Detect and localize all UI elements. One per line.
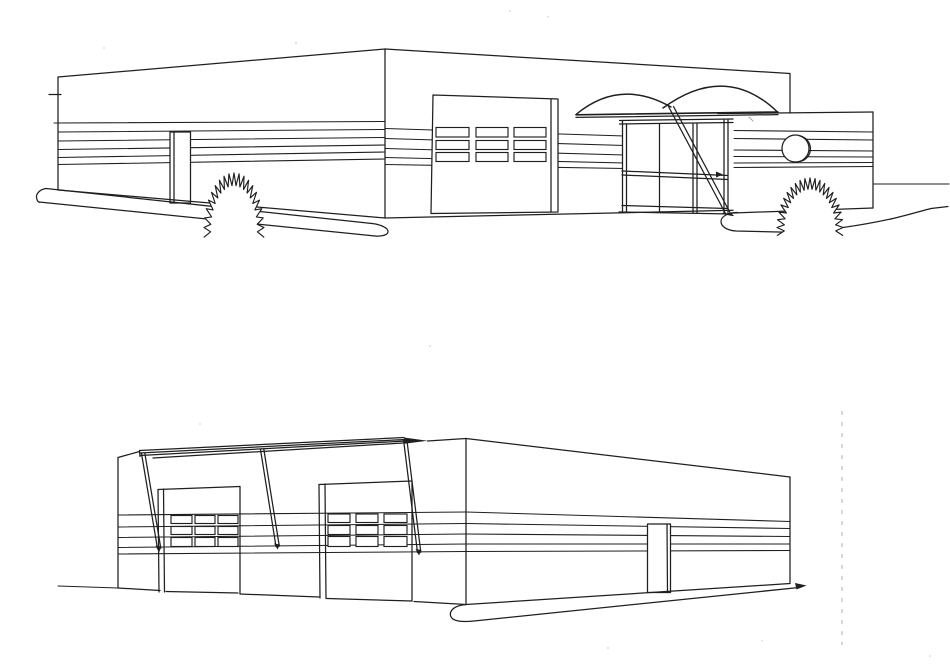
curb-pointed-end [795, 583, 807, 590]
door-1-lites [171, 516, 238, 547]
left-facade-window-bands [54, 122, 385, 165]
architectural-sketch-canvas [0, 0, 950, 669]
service-door [170, 132, 191, 203]
lower-sketch [58, 411, 842, 645]
overhead-door [431, 95, 558, 214]
door-2-lites [328, 514, 407, 547]
right-facade-window-bands-lower [466, 512, 790, 552]
overhead-door-1 [158, 487, 240, 595]
canopy-slab [140, 438, 428, 459]
canopy-pointed-end [404, 438, 428, 444]
sketch-sheet [0, 0, 950, 669]
building-outline-lower [58, 439, 790, 605]
entrance-canopy [576, 86, 778, 117]
upper-sketch [36, 49, 949, 237]
storefront-entrance [619, 119, 733, 214]
service-door-lower [648, 524, 671, 593]
overhead-door-2 [319, 481, 412, 601]
porthole-window [782, 135, 810, 162]
overhead-door-lites [436, 128, 546, 162]
ground-line-left [58, 586, 118, 588]
